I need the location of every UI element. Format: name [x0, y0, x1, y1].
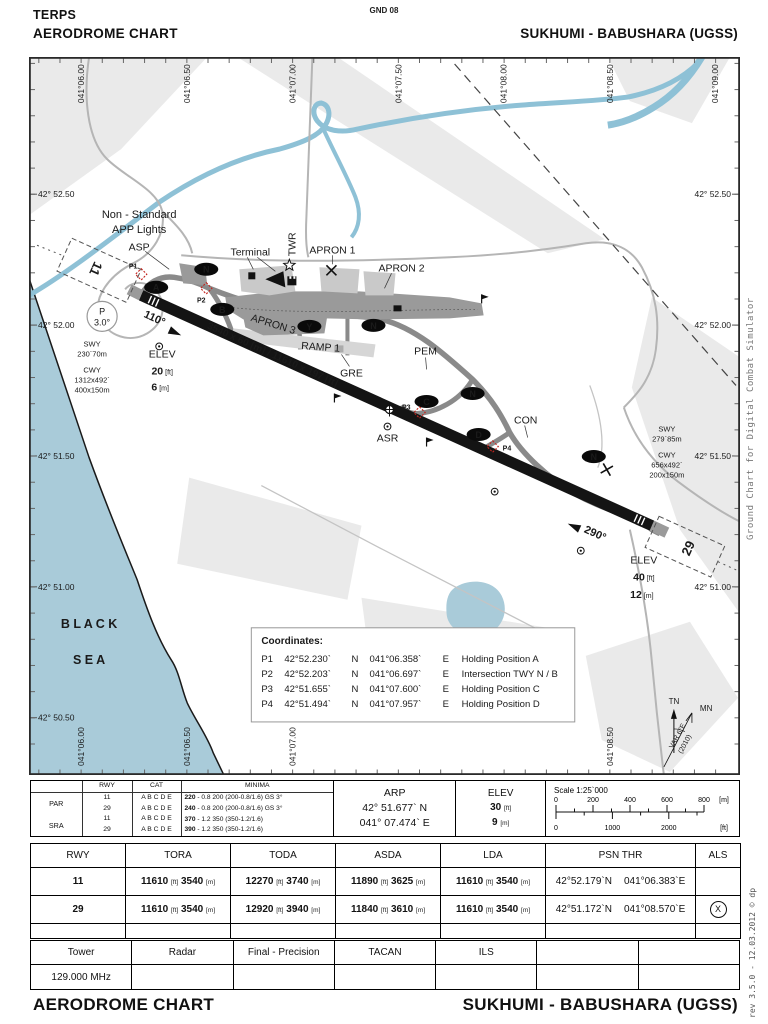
svg-text:041°09.00: 041°09.00: [710, 64, 720, 103]
minima-header-cat: CAT: [132, 781, 181, 793]
svg-text:N: N: [351, 669, 358, 680]
tn-label: TN: [669, 697, 680, 706]
svg-text:C: C: [423, 397, 430, 407]
svg-text:N: N: [351, 699, 358, 710]
svg-text:041°07.00: 041°07.00: [287, 727, 297, 766]
mn-label: MN: [700, 704, 713, 713]
svg-text:600: 600: [661, 797, 673, 804]
svg-text:P3: P3: [402, 404, 411, 411]
svg-text:041°07.600`: 041°07.600`: [369, 684, 421, 695]
arp-longitude: 041° 07.474` E: [360, 816, 430, 831]
svg-text:041°06.50: 041°06.50: [182, 727, 192, 766]
arp-cell: ARP 42° 51.677` N 041° 07.474` E: [333, 781, 455, 836]
glideslope-circle: P 3.0°: [87, 301, 117, 331]
svg-text:Holding Position C: Holding Position C: [462, 684, 540, 695]
apron2-label: APRON 2: [378, 262, 424, 274]
svg-text:200: 200: [587, 797, 599, 804]
svg-text:CWY: CWY: [658, 451, 676, 460]
scale-title: Scale 1:25`000: [554, 786, 608, 795]
svg-text:1312x492`: 1312x492`: [74, 375, 109, 384]
footer-airport-name: SUKHUMI - BABUSHARA (UGSS): [463, 995, 738, 1015]
pem-label: PEM: [414, 345, 437, 357]
footer-chart-title: AERODROME CHART: [33, 995, 214, 1015]
svg-text:42° 52.50: 42° 52.50: [38, 189, 75, 199]
elev29-label: ELEV: [630, 555, 657, 567]
svg-text:200x150m: 200x150m: [649, 471, 684, 480]
svg-text:42° 50.50: 42° 50.50: [38, 713, 75, 723]
svg-text:400: 400: [624, 797, 636, 804]
arp-label: ARP: [384, 786, 406, 801]
asr-label: ASR: [377, 433, 399, 445]
terminal-label: Terminal: [230, 246, 270, 258]
svg-text:N: N: [469, 389, 476, 399]
table-row: 129.000 MHz: [31, 965, 740, 990]
p-circle-angle: 3.0°: [94, 317, 111, 327]
svg-text:P2: P2: [197, 297, 206, 304]
svg-text:041°08.50: 041°08.50: [605, 64, 615, 103]
svg-text:2000: 2000: [661, 825, 677, 832]
svg-text:800: 800: [698, 797, 710, 804]
svg-text:42° 51.00: 42° 51.00: [694, 582, 731, 592]
table-row: SRA 11A B C D E 370 - 1.2 350 (350-1.2/1…: [31, 815, 333, 826]
svg-text:42°51.655`: 42°51.655`: [284, 684, 331, 695]
coordinates-box: Coordinates: P142°52.230`N041°06.358`EHo…: [251, 628, 574, 722]
side-note: Ground Chart for Digital Combat Simulato…: [746, 60, 756, 540]
svg-text:P4: P4: [503, 446, 512, 453]
elev-cell: ELEV 30 [ft] 9 [m]: [455, 781, 545, 836]
aerodrome-map: 11 29 3540 x 60 [m] / 11610 x 197 [ft] 1…: [29, 57, 740, 775]
svg-text:42°52.230`: 42°52.230`: [284, 654, 331, 665]
sea-name-2: S E A: [73, 653, 105, 667]
svg-text:42°52.203`: 42°52.203`: [284, 669, 331, 680]
elev-label: ELEV: [488, 787, 514, 802]
asp-label: ASP: [129, 241, 150, 253]
table-row: [31, 924, 741, 939]
svg-text:SWY: SWY: [84, 339, 101, 348]
sea-name-1: B L A C K: [61, 617, 117, 631]
minima-header-blank: [31, 781, 82, 793]
elev-m: 9 [m]: [492, 816, 509, 831]
svg-text:N: N: [370, 321, 377, 331]
svg-text:P2: P2: [261, 669, 273, 680]
svg-text:1000: 1000: [605, 825, 621, 832]
svg-text:E: E: [443, 684, 449, 695]
svg-text:42° 52.00: 42° 52.00: [694, 320, 731, 330]
svg-text:E: E: [443, 654, 449, 665]
als-circled-x: X: [710, 901, 727, 918]
svg-text:P3: P3: [261, 684, 273, 695]
svg-text:041°08.50: 041°08.50: [605, 727, 615, 766]
svg-text:N: N: [203, 265, 210, 275]
svg-text:041°06.358`: 041°06.358`: [369, 654, 421, 665]
svg-text:42° 52.50: 42° 52.50: [694, 189, 731, 199]
twr-label: TWR: [286, 232, 298, 256]
svg-text:D: D: [475, 430, 482, 440]
svg-text:P4: P4: [261, 699, 273, 710]
svg-text:041°07.50: 041°07.50: [394, 64, 404, 103]
tower-frequency: 129.000 MHz: [31, 965, 132, 990]
par-sra-minima-table: RWY CAT MINIMA PAR 11A B C D E 220 - 0.8…: [31, 781, 333, 836]
svg-text:P1: P1: [129, 263, 138, 270]
minima-arp-elev-scale-table: RWY CAT MINIMA PAR 11A B C D E 220 - 0.8…: [30, 780, 740, 837]
svg-text:279`85m: 279`85m: [652, 435, 682, 444]
app-lights-label-1: Non - Standard: [102, 209, 177, 221]
svg-text:041°07.00: 041°07.00: [287, 64, 297, 103]
scale-cell: Scale 1:25`000 0200400600800 [m] 0100020…: [545, 781, 739, 836]
apron1-label: APRON 1: [309, 244, 355, 256]
arp-latitude: 42° 51.677` N: [362, 801, 427, 816]
svg-text:400x150m: 400x150m: [75, 385, 110, 394]
runway-data-table: RWYTORATODA ASDALDAPSN THR ALS 11 11610 …: [30, 843, 740, 939]
svg-text:041°06.50: 041°06.50: [182, 64, 192, 103]
revision-note: rev 3.5.0 - 12.03.2012 © dp: [748, 828, 757, 1018]
svg-text:42° 51.00: 42° 51.00: [38, 582, 75, 592]
svg-text:42°51.494`: 42°51.494`: [284, 699, 331, 710]
svg-text:CWY: CWY: [83, 365, 101, 374]
elev-ft: 30 [ft]: [490, 801, 511, 816]
svg-text:041°06.00: 041°06.00: [76, 64, 86, 103]
svg-text:[m]: [m]: [719, 797, 729, 804]
table-row: 29 11610 [ft] 3540 [m] 12920 [ft] 3940 […: [31, 896, 741, 924]
elev11-label: ELEV: [149, 348, 176, 360]
svg-text:N: N: [351, 684, 358, 695]
svg-text:SWY: SWY: [658, 425, 675, 434]
minima-header-minima: MINIMA: [181, 781, 333, 793]
svg-text:041°06.00: 041°06.00: [76, 727, 86, 766]
chart-code: GND 08: [334, 6, 434, 15]
svg-text:041°07.957`: 041°07.957`: [369, 699, 421, 710]
minima-header-rwy: RWY: [82, 781, 132, 793]
svg-text:42° 51.50: 42° 51.50: [38, 451, 75, 461]
svg-text:A: A: [153, 283, 160, 293]
svg-text:P1: P1: [261, 654, 273, 665]
p-circle-letter: P: [99, 306, 105, 316]
coordinates-title: Coordinates:: [261, 636, 323, 647]
svg-text:N: N: [591, 452, 598, 462]
comms-table: TowerRadarFinal - Precision TACANILS 129…: [30, 940, 740, 990]
app-lights-label-2: APP Lights: [112, 224, 167, 236]
svg-text:E: E: [443, 669, 449, 680]
svg-text:0: 0: [554, 797, 558, 804]
con-label: CON: [514, 415, 537, 427]
chart-title: AERODROME CHART: [33, 26, 178, 41]
svg-text:Holding Position A: Holding Position A: [462, 654, 540, 665]
svg-text:E: E: [443, 699, 449, 710]
svg-text:041°08.00: 041°08.00: [499, 64, 509, 103]
svg-text:[ft]: [ft]: [720, 825, 728, 832]
svg-text:42° 51.50: 42° 51.50: [694, 451, 731, 461]
svg-text:0: 0: [554, 825, 558, 832]
svg-text:B: B: [219, 305, 226, 315]
aerodrome-chart-page: TERPS AERODROME CHART GND 08 SUKHUMI - B…: [0, 0, 768, 1024]
svg-text:656x492`: 656x492`: [651, 461, 682, 470]
table-row: PAR 11A B C D E 220 - 0.8 200 (200-0.8/1…: [31, 793, 333, 804]
svg-text:Holding Position D: Holding Position D: [462, 699, 540, 710]
chart-type: TERPS: [33, 8, 76, 22]
svg-text:42° 52.00: 42° 52.00: [38, 320, 75, 330]
svg-text:N: N: [351, 654, 358, 665]
svg-text:041°06.697`: 041°06.697`: [369, 669, 421, 680]
scale-bar: Scale 1:25`000 0200400600800 [m] 0100020…: [546, 781, 739, 836]
svg-text:230`70m: 230`70m: [77, 349, 107, 358]
svg-text:Intersection TWY N / B: Intersection TWY N / B: [462, 669, 558, 680]
table-row: 11 11610 [ft] 3540 [m] 12270 [ft] 3740 […: [31, 868, 741, 896]
svg-text:Y: Y: [306, 322, 312, 332]
airport-name: SUKHUMI - BABUSHARA (UGSS): [520, 26, 738, 41]
gre-label: GRE: [340, 367, 363, 379]
